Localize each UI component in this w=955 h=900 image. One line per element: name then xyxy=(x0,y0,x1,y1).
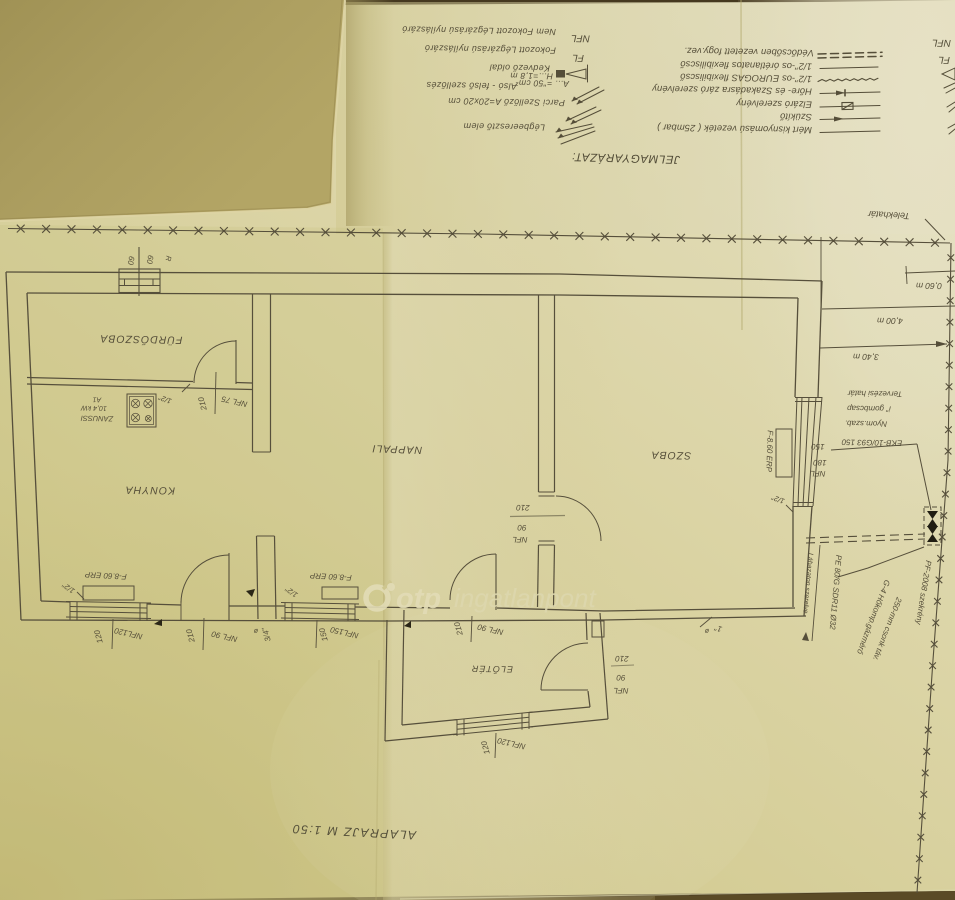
svg-text:Szükítő: Szükítő xyxy=(779,111,812,123)
svg-text:NFL: NFL xyxy=(571,32,590,43)
svg-text:Védőcsőben vezetett fogy.vez.: Védőcsőben vezetett fogy.vez. xyxy=(684,46,814,59)
svg-text:FÜRDŐSZOBA: FÜRDŐSZOBA xyxy=(99,332,182,347)
svg-text:Kedvező oldal: Kedvező oldal xyxy=(489,62,550,73)
svg-text:1/2"-os EUROGAS flexibiliscső: 1/2"-os EUROGAS flexibiliscső xyxy=(679,72,812,85)
svg-text:Elzáró szerelvény: Elzáró szerelvény xyxy=(735,98,812,110)
svg-text:FL: FL xyxy=(938,54,950,65)
svg-text:i" gombcsap: i" gombcsap xyxy=(846,404,890,414)
svg-text:10,4 kW: 10,4 kW xyxy=(80,404,107,411)
svg-text:FL: FL xyxy=(572,52,584,63)
svg-text:ZANUSSI: ZANUSSI xyxy=(81,414,115,424)
svg-text:0,60 m: 0,60 m xyxy=(916,281,942,291)
svg-text:Nyom.szab.: Nyom.szab. xyxy=(845,419,887,429)
svg-text:F-8.60 ERP: F-8.60 ERP xyxy=(764,430,774,473)
svg-text:ELŐTÉR: ELŐTÉR xyxy=(471,664,513,675)
svg-text:180: 180 xyxy=(813,458,827,467)
svg-text:NFL: NFL xyxy=(810,469,825,478)
svg-text:3,40 m: 3,40 m xyxy=(853,352,879,362)
svg-text:Alsó - felső szellőzés: Alsó - felső szellőzés xyxy=(426,80,518,92)
svg-text:150: 150 xyxy=(811,442,825,451)
svg-text:A1: A1 xyxy=(93,395,103,402)
svg-text:KONYHA: KONYHA xyxy=(125,484,176,497)
svg-text:otp: otp xyxy=(396,583,441,615)
svg-text:90: 90 xyxy=(517,523,527,532)
svg-text:Légbeeresztő elem: Légbeeresztő elem xyxy=(463,121,545,132)
svg-text:ingatlanpont: ingatlanpont xyxy=(454,583,597,613)
svg-text:Parci Szellőző A=20x20 cm: Parci Szellőző A=20x20 cm xyxy=(448,96,565,108)
svg-text:210: 210 xyxy=(615,654,630,663)
svg-text:NFL: NFL xyxy=(613,686,628,695)
svg-text:210: 210 xyxy=(516,503,531,512)
svg-text:NAPPALI: NAPPALI xyxy=(371,442,422,456)
svg-text:1/2"-os órétlanatos flexibilis: 1/2"-os órétlanatos flexibiliscső xyxy=(679,59,812,72)
svg-text:NFL: NFL xyxy=(932,37,951,48)
svg-text:SZOBA: SZOBA xyxy=(651,449,692,462)
svg-text:4,00 m: 4,00 m xyxy=(877,316,903,326)
svg-text:Tervezési határ: Tervezési határ xyxy=(847,389,902,399)
svg-text:NFL: NFL xyxy=(512,535,527,544)
svg-text:90: 90 xyxy=(616,673,626,682)
